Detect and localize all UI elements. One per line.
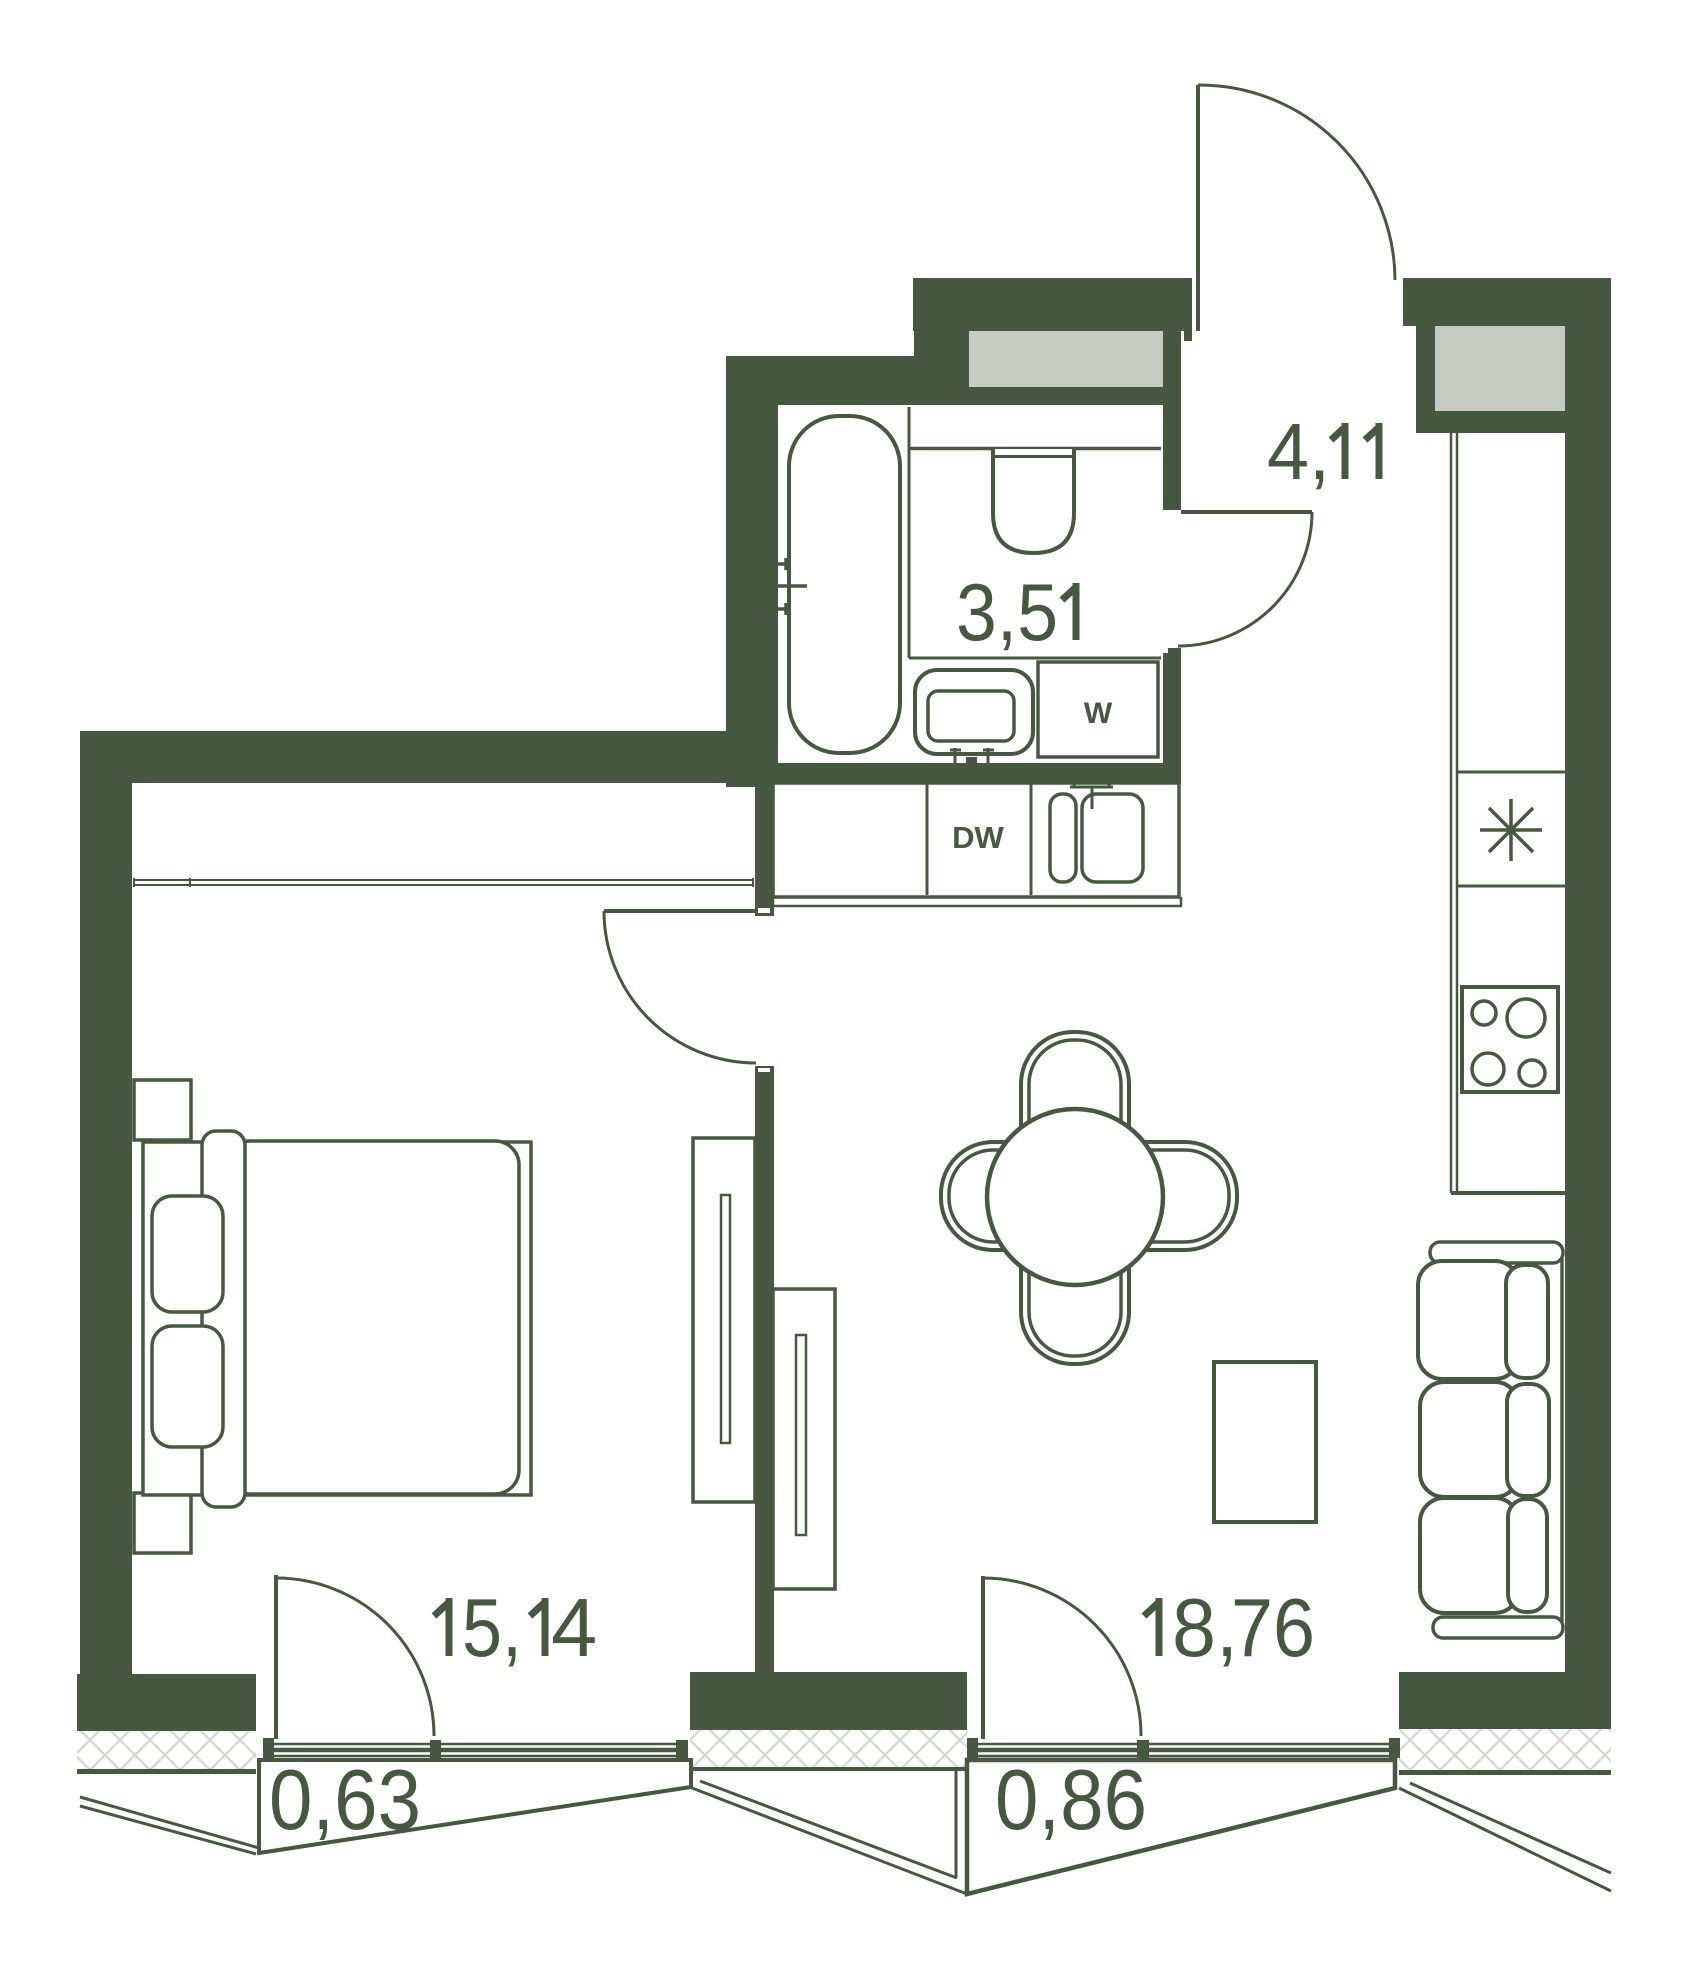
svg-text:DW: DW [952,820,1004,855]
svg-text:0,86: 0,86 [995,1753,1147,1848]
svg-text:0,63: 0,63 [269,1753,421,1848]
svg-text:76: 76 [1231,1581,1315,1674]
svg-text:W: W [1084,697,1113,730]
svg-text:3,5: 3,5 [956,568,1058,658]
svg-text:4: 4 [551,1581,597,1674]
svg-text:5,: 5, [462,1581,522,1674]
svg-text:8,: 8, [1172,1581,1238,1674]
svg-text:4,: 4, [1267,407,1330,496]
